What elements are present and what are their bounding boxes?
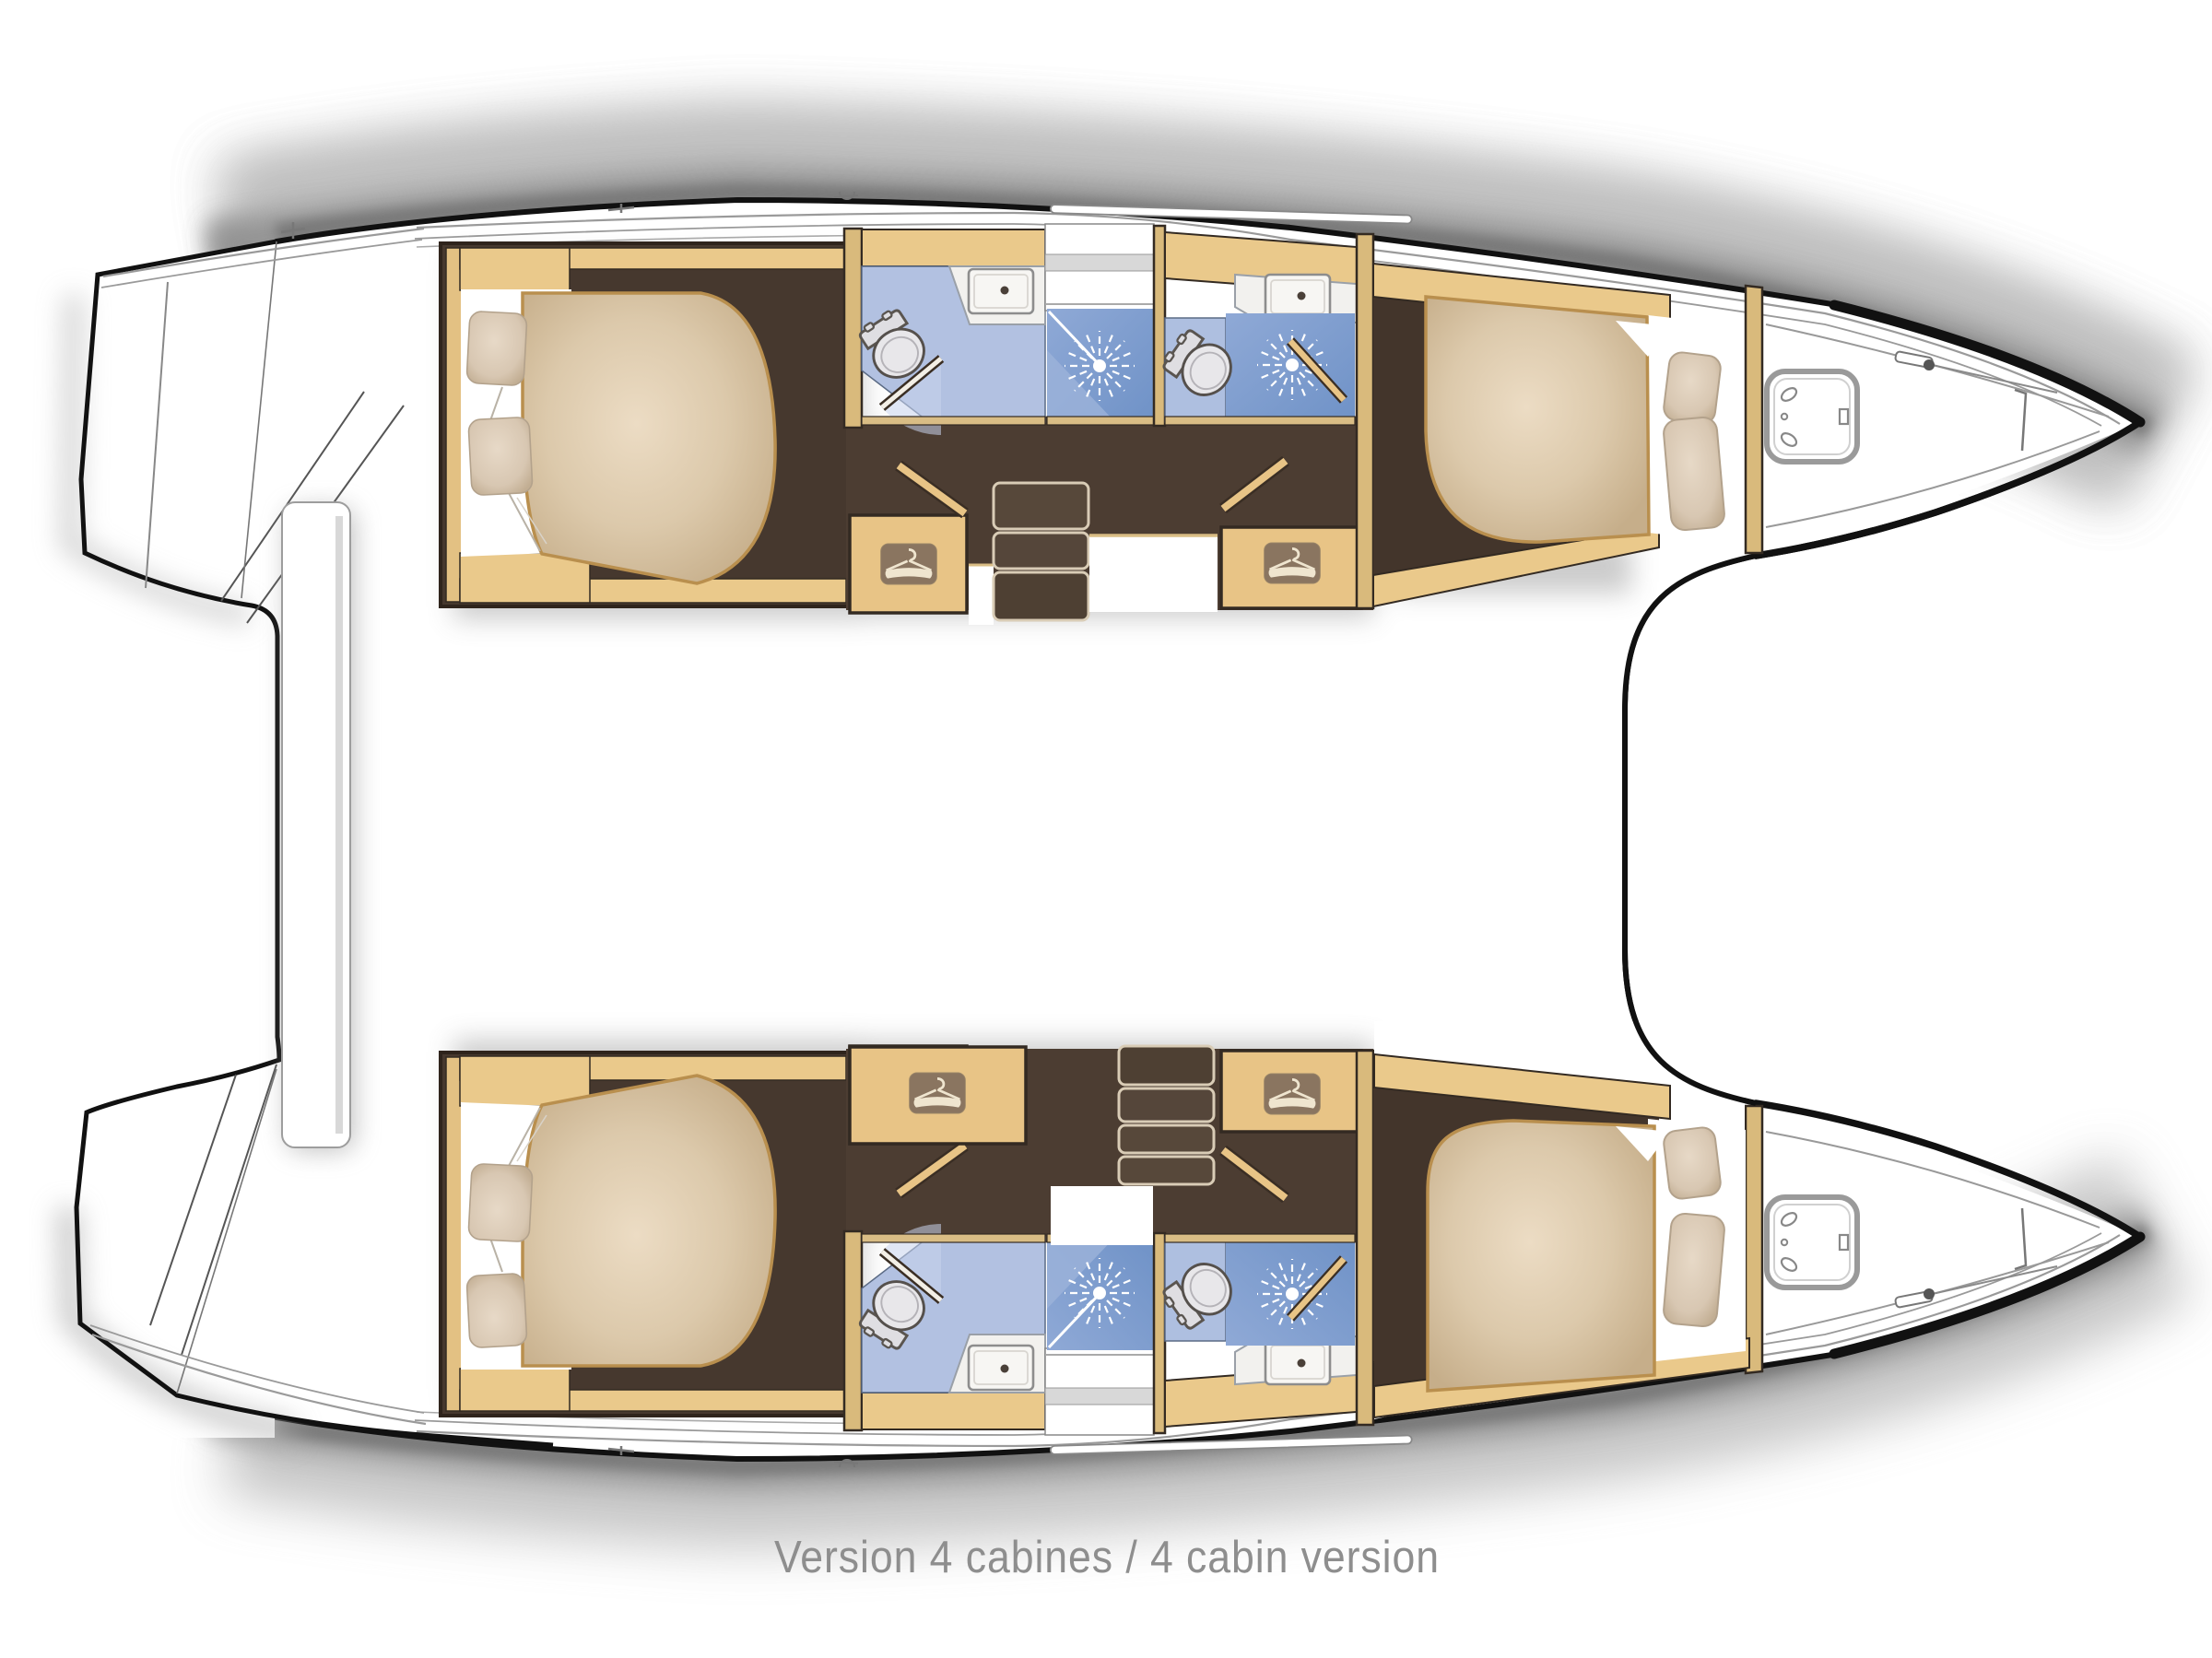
svg-text:Version 4 cabines / 4 cabin ve: Version 4 cabines / 4 cabin version: [774, 1533, 1440, 1582]
